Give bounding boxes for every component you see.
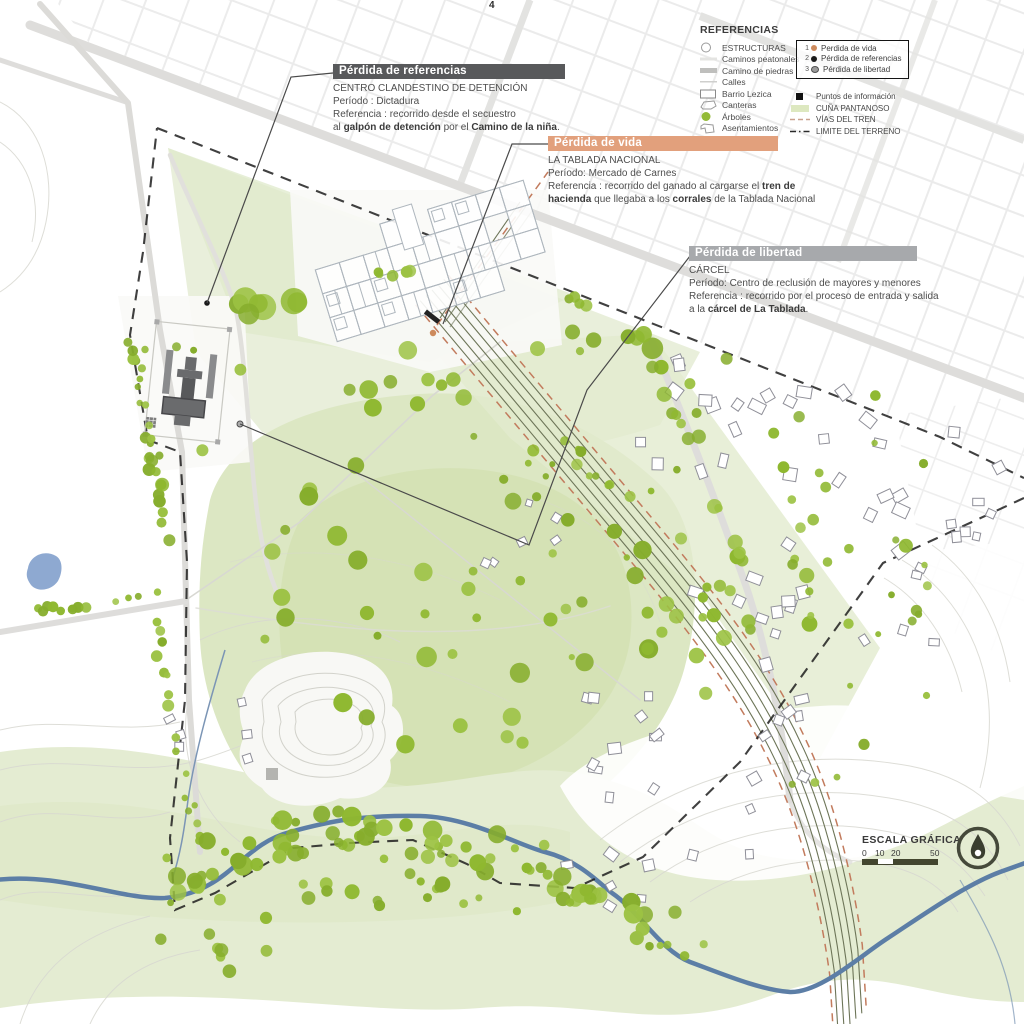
stone-road-line-icon	[700, 67, 722, 74]
legend-numbered-1: 1 Perdida de vida	[801, 43, 902, 54]
legend-item-puntos-informacion: Puntos de información	[790, 91, 960, 103]
legend-numbered-3: 3 Pérdida de libertad	[801, 64, 902, 75]
structure-circle-icon	[700, 42, 722, 53]
legend-numbered-2: 2 Pérdida de referencias	[801, 54, 902, 65]
quarry	[240, 652, 403, 806]
settlement-poly-icon	[700, 123, 722, 134]
annotation-header: Pérdida de vida	[548, 136, 778, 151]
annotation-body: CÁRCELPeríodo: Centro de reclusión de ma…	[689, 264, 989, 316]
street-line-icon	[700, 80, 722, 84]
annotation-perdida-de-libertad: Pérdida de libertad CÁRCELPeríodo: Centr…	[689, 246, 989, 316]
tree-dot-icon	[700, 111, 722, 122]
annotation-perdida-de-vida: Pérdida de vida LA TABLADA NACIONALPerío…	[548, 136, 858, 206]
annotation-perdida-de-referencias: Pérdida de referencias CENTRO CLANDESTIN…	[333, 64, 573, 134]
rail-dash-icon	[790, 117, 816, 122]
annotation-body: LA TABLADA NACIONALPeríodo: Mercado de C…	[548, 154, 858, 206]
page-number: 4	[489, 0, 495, 11]
legend-title: REFERENCIAS	[700, 24, 850, 36]
scale-bar	[862, 859, 938, 865]
marker-1-perdida-de-vida	[430, 330, 436, 336]
legend-extra-panel: Puntos de información CUÑA PANTANOSO VÍA…	[790, 91, 960, 137]
pond	[27, 553, 62, 589]
limit-dash-icon	[790, 129, 816, 134]
quarry-shape-icon	[700, 100, 722, 110]
map-poster: { "page": { "number": "4" }, "legend": {…	[0, 0, 1024, 1024]
legend-item-cuna-pantanoso: CUÑA PANTANOSO	[790, 103, 960, 115]
north-arrow-icon	[954, 824, 1002, 877]
site-map	[0, 0, 1024, 1024]
black-dot-icon	[811, 56, 817, 62]
swamp-swatch-icon	[790, 104, 816, 113]
legend-item-vias-del-tren: VÍAS DEL TREN	[790, 114, 960, 126]
gray-dot-icon	[811, 66, 819, 73]
barrio-rect-icon	[700, 89, 722, 99]
legend-numbered-box: 1 Perdida de vida 2 Pérdida de referenci…	[796, 40, 909, 79]
info-square-icon	[790, 92, 816, 101]
annotation-header: Pérdida de referencias	[333, 64, 565, 79]
orange-dot-icon	[811, 45, 817, 51]
footpath-line-icon	[700, 56, 722, 62]
annotation-header: Pérdida de libertad	[689, 246, 917, 261]
annotation-body: CENTRO CLANDESTINO DE DETENCIÓNPeríodo :…	[333, 82, 573, 134]
